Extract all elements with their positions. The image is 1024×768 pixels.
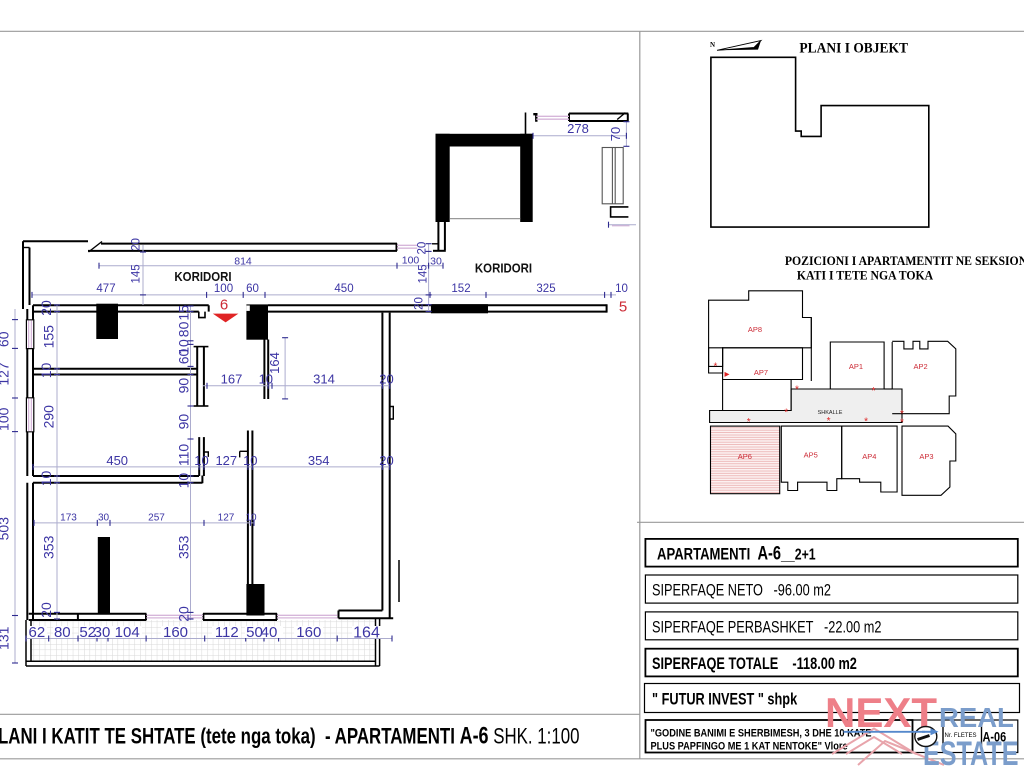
svg-text:100: 100 bbox=[214, 283, 233, 295]
svg-text:164: 164 bbox=[353, 625, 380, 642]
svg-text:10: 10 bbox=[38, 471, 54, 487]
svg-text:100: 100 bbox=[0, 407, 12, 431]
svg-text:AP8: AP8 bbox=[748, 325, 762, 334]
svg-text:160: 160 bbox=[163, 624, 188, 641]
svg-text:10: 10 bbox=[245, 513, 257, 524]
svg-text:354: 354 bbox=[308, 453, 330, 468]
svg-text:503: 503 bbox=[0, 517, 12, 541]
svg-text:15: 15 bbox=[176, 305, 192, 321]
svg-text:KATI I TETE NGA TOKA: KATI I TETE NGA TOKA bbox=[797, 268, 933, 282]
svg-text:104: 104 bbox=[115, 624, 140, 641]
svg-text:PLANI I OBJEKT: PLANI I OBJEKT bbox=[799, 41, 908, 57]
svg-text:6: 6 bbox=[220, 297, 228, 314]
svg-text:145: 145 bbox=[131, 264, 143, 283]
svg-text:127: 127 bbox=[215, 453, 237, 468]
svg-text:20: 20 bbox=[38, 300, 54, 316]
svg-text:20: 20 bbox=[379, 453, 393, 468]
svg-text:314: 314 bbox=[313, 371, 335, 386]
svg-text:AP2: AP2 bbox=[914, 362, 928, 371]
svg-text:80: 80 bbox=[54, 624, 71, 641]
svg-text:*: * bbox=[747, 417, 751, 428]
svg-text:173: 173 bbox=[60, 513, 77, 524]
svg-text:POZICIONI I APARTAMENTIT NE SE: POZICIONI I APARTAMENTIT NE SEKSION bbox=[785, 254, 1024, 268]
svg-text:30: 30 bbox=[98, 513, 110, 524]
svg-text:353: 353 bbox=[176, 535, 192, 559]
svg-text:*: * bbox=[795, 385, 799, 396]
svg-text:353: 353 bbox=[41, 535, 57, 559]
svg-text:*: * bbox=[900, 418, 904, 429]
svg-text:LANI I KATIT TE SHTATE (tete n: LANI I KATIT TE SHTATE (tete nga toka) -… bbox=[0, 723, 580, 749]
svg-text:20: 20 bbox=[176, 606, 192, 622]
svg-text:AP5: AP5 bbox=[804, 451, 818, 460]
svg-text:AP3: AP3 bbox=[919, 452, 933, 461]
svg-text:290: 290 bbox=[41, 405, 57, 429]
svg-text:450: 450 bbox=[106, 453, 128, 468]
svg-text:PLUS PAPFINGO ME 1 KAT NENTOKE: PLUS PAPFINGO ME 1 KAT NENTOKE" Vlore bbox=[651, 741, 848, 753]
svg-text:60: 60 bbox=[246, 283, 259, 295]
svg-text:AP6: AP6 bbox=[738, 452, 752, 461]
svg-text:*: * bbox=[864, 417, 868, 428]
svg-text:10: 10 bbox=[615, 283, 628, 295]
svg-text:▸: ▸ bbox=[724, 369, 729, 380]
svg-text:20: 20 bbox=[416, 242, 428, 255]
svg-text:131: 131 bbox=[0, 626, 12, 650]
svg-text:SIPERFAQE PERBASHKET -22.00: SIPERFAQE PERBASHKET -22.00 m2 bbox=[652, 618, 881, 637]
svg-text:814: 814 bbox=[234, 256, 252, 268]
svg-text:477: 477 bbox=[96, 283, 115, 295]
svg-text:155: 155 bbox=[41, 325, 57, 349]
svg-text:112: 112 bbox=[215, 624, 239, 641]
svg-text:20: 20 bbox=[379, 371, 393, 386]
svg-text:" FUTUR INVEST " shpk: " FUTUR INVEST " shpk bbox=[652, 690, 798, 709]
svg-text:160: 160 bbox=[296, 624, 321, 641]
svg-text:90: 90 bbox=[176, 378, 192, 394]
svg-text:ESTATE: ESTATE bbox=[923, 735, 1018, 768]
svg-text:*: * bbox=[713, 361, 717, 372]
svg-text:20: 20 bbox=[413, 297, 425, 310]
svg-text:N: N bbox=[710, 41, 715, 49]
svg-text:SIPERFAQE TOTALE -118.00 m2: SIPERFAQE TOTALE -118.00 m2 bbox=[652, 654, 857, 673]
svg-text:KORIDORI: KORIDORI bbox=[174, 269, 231, 284]
svg-text:*: * bbox=[784, 408, 788, 419]
svg-text:145: 145 bbox=[417, 264, 429, 283]
svg-text:60: 60 bbox=[0, 331, 12, 347]
svg-text:20: 20 bbox=[38, 602, 54, 618]
svg-text:278: 278 bbox=[567, 121, 589, 136]
svg-text:62: 62 bbox=[29, 624, 46, 641]
svg-text:30: 30 bbox=[94, 624, 111, 641]
svg-text:325: 325 bbox=[536, 283, 555, 295]
svg-text:40: 40 bbox=[261, 624, 278, 641]
svg-text:SIPERFAQE NETO -96.00 m2: SIPERFAQE NETO -96.00 m2 bbox=[652, 581, 831, 600]
svg-text:164: 164 bbox=[267, 352, 282, 374]
svg-text:20: 20 bbox=[131, 238, 143, 251]
svg-text:5: 5 bbox=[619, 299, 627, 316]
svg-text:10: 10 bbox=[243, 453, 257, 468]
svg-text:127: 127 bbox=[0, 362, 12, 386]
svg-text:110: 110 bbox=[176, 444, 192, 467]
svg-text:REAL: REAL bbox=[939, 702, 1014, 733]
svg-text:30: 30 bbox=[430, 256, 442, 268]
svg-text:450: 450 bbox=[334, 283, 353, 295]
svg-text:AP4: AP4 bbox=[862, 452, 876, 461]
svg-text:KORIDORI: KORIDORI bbox=[475, 261, 532, 276]
svg-text:AP7: AP7 bbox=[754, 368, 768, 377]
svg-text:167: 167 bbox=[221, 371, 243, 386]
svg-text:90: 90 bbox=[176, 414, 192, 430]
svg-text:152: 152 bbox=[451, 283, 470, 295]
svg-text:257: 257 bbox=[148, 513, 165, 524]
svg-text:*: * bbox=[872, 386, 876, 397]
svg-text:APARTAMENTI A-6__2+1: APARTAMENTI A-6__2+1 bbox=[657, 543, 816, 564]
svg-text:60: 60 bbox=[176, 349, 192, 365]
svg-text:10: 10 bbox=[194, 453, 208, 468]
svg-text:10: 10 bbox=[176, 473, 192, 489]
svg-text:70: 70 bbox=[608, 127, 623, 141]
svg-text:127: 127 bbox=[218, 513, 235, 524]
svg-text:10: 10 bbox=[38, 363, 54, 379]
svg-text:80: 80 bbox=[176, 321, 192, 337]
svg-text:*: * bbox=[827, 416, 831, 427]
svg-text:AP1: AP1 bbox=[849, 362, 863, 371]
